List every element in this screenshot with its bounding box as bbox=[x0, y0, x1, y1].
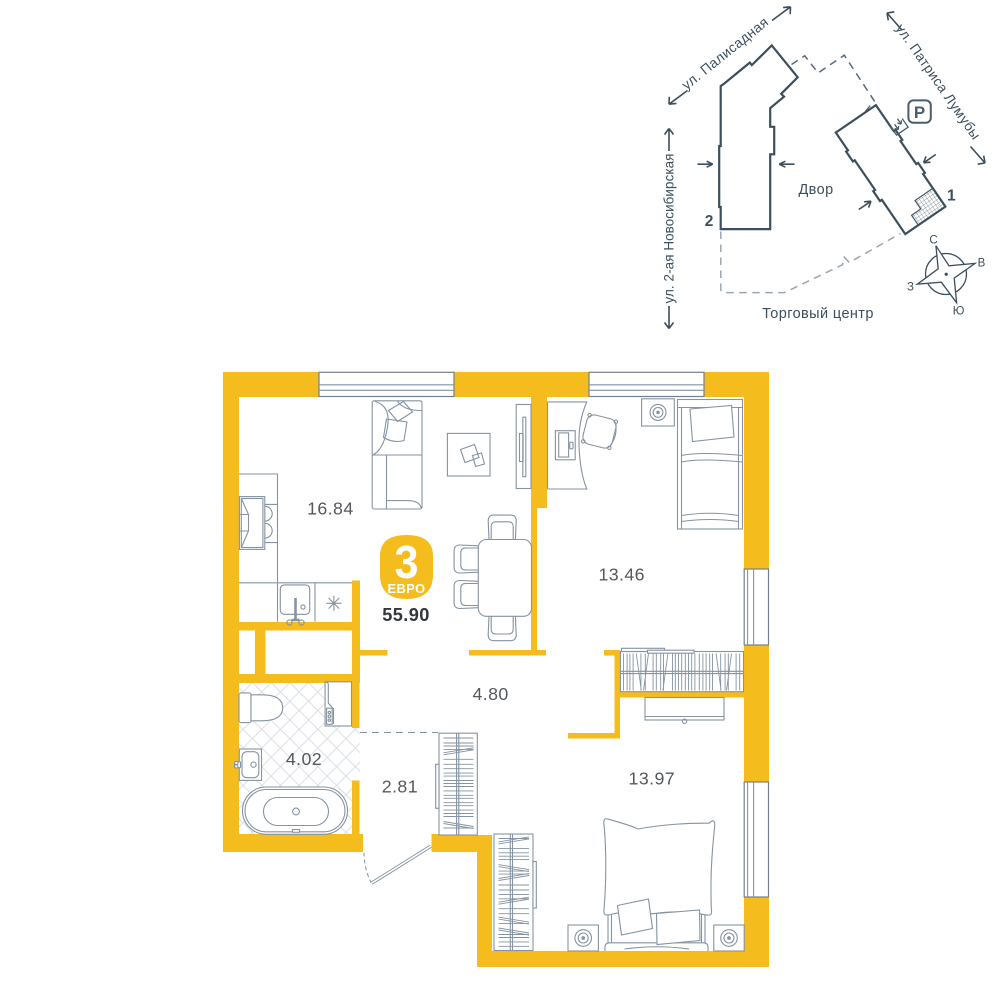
svg-text:4.02: 4.02 bbox=[286, 749, 322, 769]
svg-text:13.97: 13.97 bbox=[629, 768, 676, 788]
svg-text:13.46: 13.46 bbox=[598, 564, 645, 584]
svg-text:В: В bbox=[978, 258, 986, 270]
svg-text:2: 2 bbox=[705, 213, 714, 230]
svg-text:Двор: Двор bbox=[798, 182, 833, 198]
svg-text:Торговый центр: Торговый центр bbox=[762, 306, 874, 322]
svg-text:4.80: 4.80 bbox=[472, 684, 508, 704]
svg-text:55.90: 55.90 bbox=[382, 605, 430, 625]
svg-text:З: З bbox=[907, 282, 914, 294]
svg-text:16.84: 16.84 bbox=[307, 498, 354, 518]
svg-text:С: С bbox=[929, 235, 937, 247]
svg-text:1: 1 bbox=[947, 188, 956, 205]
svg-text:Ю: Ю bbox=[953, 306, 965, 318]
svg-text:2.81: 2.81 bbox=[382, 777, 418, 797]
svg-text:ул. 2-ая Новосибирская: ул. 2-ая Новосибирская bbox=[662, 153, 677, 303]
svg-text:P: P bbox=[914, 103, 925, 122]
svg-text:ЕВРО: ЕВРО bbox=[387, 581, 425, 596]
